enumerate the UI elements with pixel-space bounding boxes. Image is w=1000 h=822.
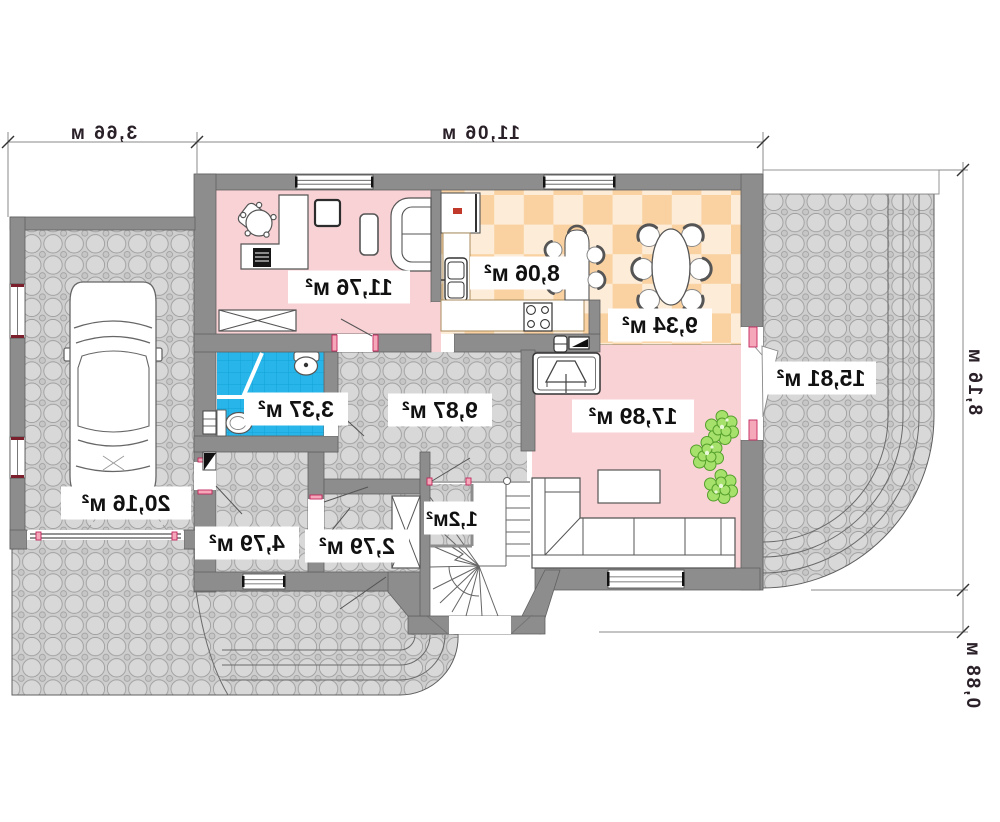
svg-text:8,06 м²: 8,06 м² — [484, 260, 560, 286]
svg-text:8,16 м: 8,16 м — [964, 347, 985, 415]
svg-text:3,37 м²: 3,37 м² — [258, 396, 334, 422]
svg-text:20,16 м²: 20,16 м² — [81, 490, 170, 516]
svg-text:0,88 м: 0,88 м — [962, 640, 983, 708]
svg-text:1,2м²: 1,2м² — [426, 508, 478, 531]
svg-text:2,79 м²: 2,79 м² — [319, 533, 395, 559]
svg-text:4,79 м²: 4,79 м² — [209, 530, 285, 556]
svg-text:17,89 м²: 17,89 м² — [588, 403, 677, 429]
svg-text:9,87 м²: 9,87 м² — [402, 397, 478, 423]
svg-text:3,66 м: 3,66 м — [69, 123, 137, 144]
svg-text:11,06 м: 11,06 м — [440, 123, 520, 144]
svg-text:9,34 м²: 9,34 м² — [622, 312, 698, 338]
svg-text:15,81 м²: 15,81 м² — [776, 365, 865, 391]
svg-text:11,76 м²: 11,76 м² — [305, 274, 393, 300]
